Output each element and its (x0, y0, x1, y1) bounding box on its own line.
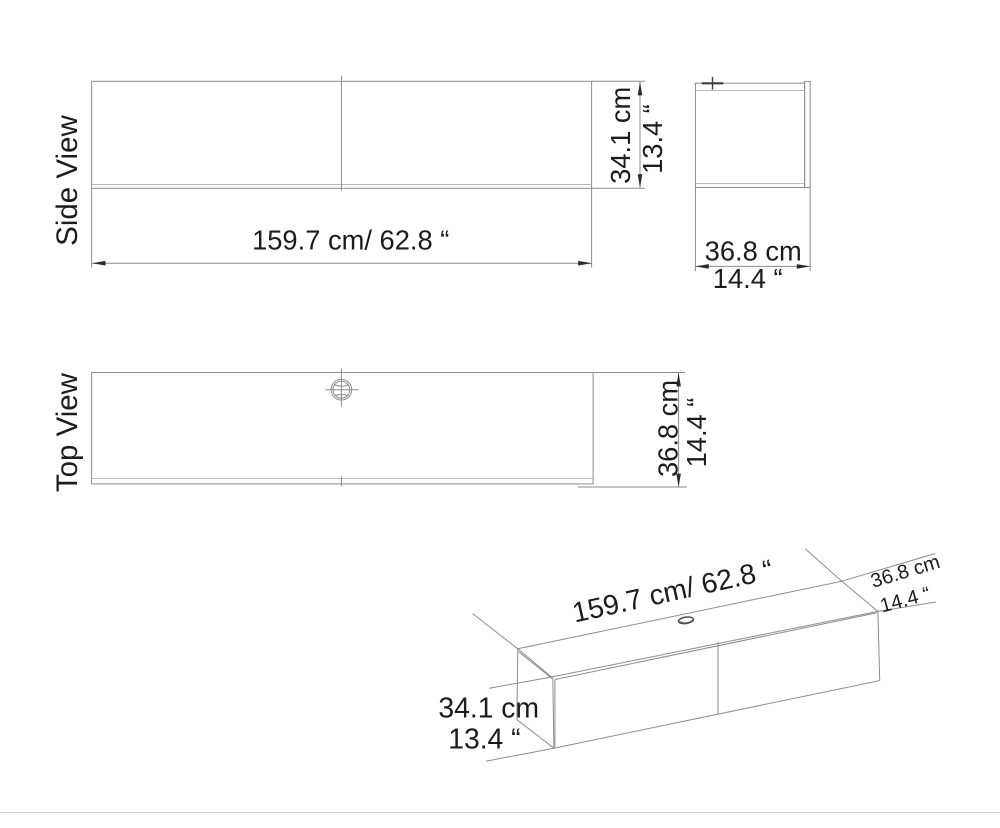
svg-text:13.4 “: 13.4 “ (448, 723, 520, 755)
svg-text:13.4 “: 13.4 “ (637, 104, 668, 174)
svg-text:34.1 cm: 34.1 cm (605, 87, 636, 184)
svg-text:14.4 “: 14.4 “ (681, 398, 712, 468)
svg-text:Side View: Side View (51, 114, 84, 245)
svg-text:159.7 cm/ 62.8 “: 159.7 cm/ 62.8 “ (252, 225, 449, 256)
svg-text:34.1 cm: 34.1 cm (438, 692, 539, 724)
svg-text:36.8 cm: 36.8 cm (652, 380, 683, 477)
svg-text:Top View: Top View (51, 372, 84, 492)
svg-text:14.4 “: 14.4 “ (713, 263, 783, 294)
svg-text:36.8 cm: 36.8 cm (705, 236, 802, 267)
